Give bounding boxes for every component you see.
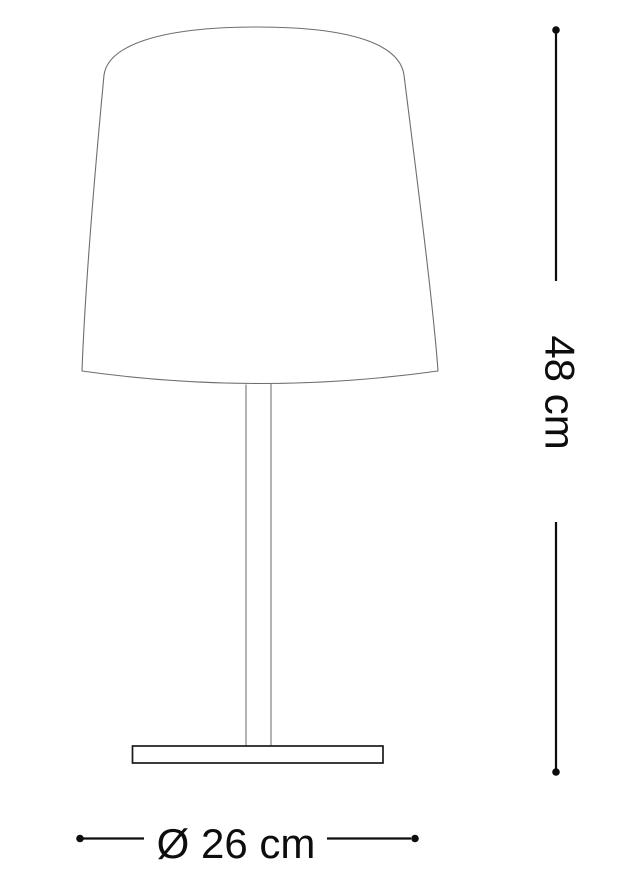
diameter-dimension-label: Ø 26 cm bbox=[157, 820, 316, 867]
lamp-drawing bbox=[82, 27, 438, 763]
lampshade-outline bbox=[82, 27, 438, 384]
height-dimension-bottom-dot bbox=[552, 768, 560, 776]
lamp-dimension-diagram: 48 cm Ø 26 cm bbox=[0, 0, 642, 884]
height-dimension-label: 48 cm bbox=[537, 335, 584, 449]
lamp-base bbox=[133, 746, 384, 763]
diagram-canvas: 48 cm Ø 26 cm bbox=[0, 0, 642, 884]
height-dimension: 48 cm bbox=[537, 26, 584, 776]
diameter-dimension: Ø 26 cm bbox=[76, 820, 419, 867]
diameter-dimension-right-dot bbox=[411, 835, 419, 843]
